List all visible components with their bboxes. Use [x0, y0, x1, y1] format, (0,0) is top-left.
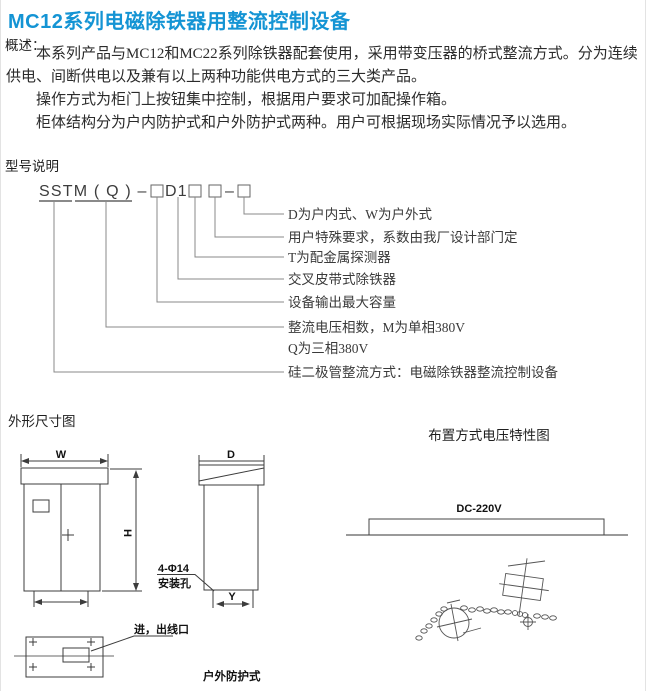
- model-label-6: 整流电压相数，M为单相380V: [288, 320, 465, 335]
- mount-hole-label-line2: 安装孔: [158, 576, 191, 590]
- leader-line-2: [215, 197, 284, 237]
- side-body: [204, 485, 258, 590]
- model-code-prefix: SSTM ( Q ) –: [39, 183, 148, 200]
- model-code-box-4: [238, 185, 250, 197]
- leader-line-3: [195, 197, 284, 257]
- model-label-4: 交叉皮带式除铁器: [288, 271, 396, 287]
- model-code-box-1: [151, 185, 163, 197]
- model-code-box-2: [189, 185, 201, 197]
- conveyor-sketch: [416, 555, 557, 641]
- mount-hole-crosses: [29, 638, 95, 671]
- model-label-1: D为户内式、W为户外式: [288, 206, 432, 222]
- outline-dimension-drawing: W H D Y 4-Φ14 安装孔: [1, 400, 331, 691]
- dc-voltage-label: DC-220V: [456, 503, 502, 515]
- cabinet-plan-view: 进，出线口: [14, 622, 189, 677]
- dim-y-label: Y: [228, 591, 236, 603]
- model-code: SSTM ( Q ) – D1 –: [39, 183, 250, 201]
- datasheet-page: MC12系列电磁除铁器用整流控制设备 概述： 本系列产品与MC12和MC22系列…: [0, 0, 646, 691]
- cable-port-label: 进，出线口: [134, 622, 189, 636]
- model-label-7: Q为三相380V: [288, 341, 368, 356]
- model-code-mid: D1: [165, 183, 188, 200]
- model-labels: D为户内式、W为户外式 用户特殊要求，系数由我厂设计部门定 T为配金属探测器 交…: [288, 206, 558, 380]
- cabinet-front-view: W H: [21, 449, 142, 607]
- pulley-crosshair: [437, 600, 481, 641]
- overview-paragraphs: 本系列产品与MC12和MC22系列除铁器配套使用，采用带变压器的桥式整流方式。分…: [6, 43, 643, 135]
- dim-w-label: W: [56, 449, 67, 461]
- leader-line-5: [157, 197, 284, 302]
- overview-paragraph-1: 本系列产品与MC12和MC22系列除铁器配套使用，采用带变压器的桥式整流方式。分…: [6, 43, 643, 89]
- cabinet-roof: [21, 468, 108, 484]
- overview-paragraph-3: 柜体结构分为户内防护式和户外防护式两种。用户可根据现场实际情况予以选用。: [6, 112, 643, 135]
- dim-d-label: D: [227, 449, 235, 461]
- leader-line-8: [54, 202, 284, 372]
- model-code-dash: –: [225, 183, 235, 200]
- model-heading: 型号说明: [5, 155, 59, 175]
- cabinet-window: [33, 500, 49, 512]
- mount-hole-label-line1: 4-Φ14: [158, 563, 190, 575]
- magnet-box-icon: [495, 555, 553, 619]
- leader-line-1: [244, 197, 284, 214]
- model-label-8: 硅二极管整流方式：电磁除铁器整流控制设备: [288, 364, 558, 380]
- model-label-5: 设备输出最大容量: [288, 294, 396, 310]
- overview-paragraph-2: 操作方式为柜门上按钮集中控制，根据用户要求可加配操作箱。: [6, 89, 643, 112]
- front-base-dim: [34, 591, 88, 607]
- dim-h-label: H: [121, 529, 133, 537]
- model-code-box-3: [209, 185, 221, 197]
- enclosure-type-label: 户外防护式: [203, 669, 261, 683]
- voltage-characteristic-figure: DC-220V: [331, 400, 646, 691]
- voltage-pulse: [369, 519, 604, 535]
- door-handle-cross: [62, 529, 74, 541]
- leader-line-4: [178, 197, 284, 279]
- model-label-3: T为配金属探测器: [288, 250, 391, 265]
- cable-port: [63, 648, 89, 662]
- material-pieces: [416, 606, 557, 640]
- model-label-2: 用户特殊要求，系数由我厂设计部门定: [288, 229, 518, 245]
- side-roof-slope: [199, 468, 264, 481]
- model-leader-lines: [54, 197, 284, 372]
- cabinet-side-view: D Y 4-Φ14 安装孔: [157, 449, 264, 608]
- model-designation-diagram: SSTM ( Q ) – D1 – D为户内式、W为户外式 用户特殊要求，系数由…: [1, 175, 646, 391]
- page-title: MC12系列电磁除铁器用整流控制设备: [8, 5, 350, 34]
